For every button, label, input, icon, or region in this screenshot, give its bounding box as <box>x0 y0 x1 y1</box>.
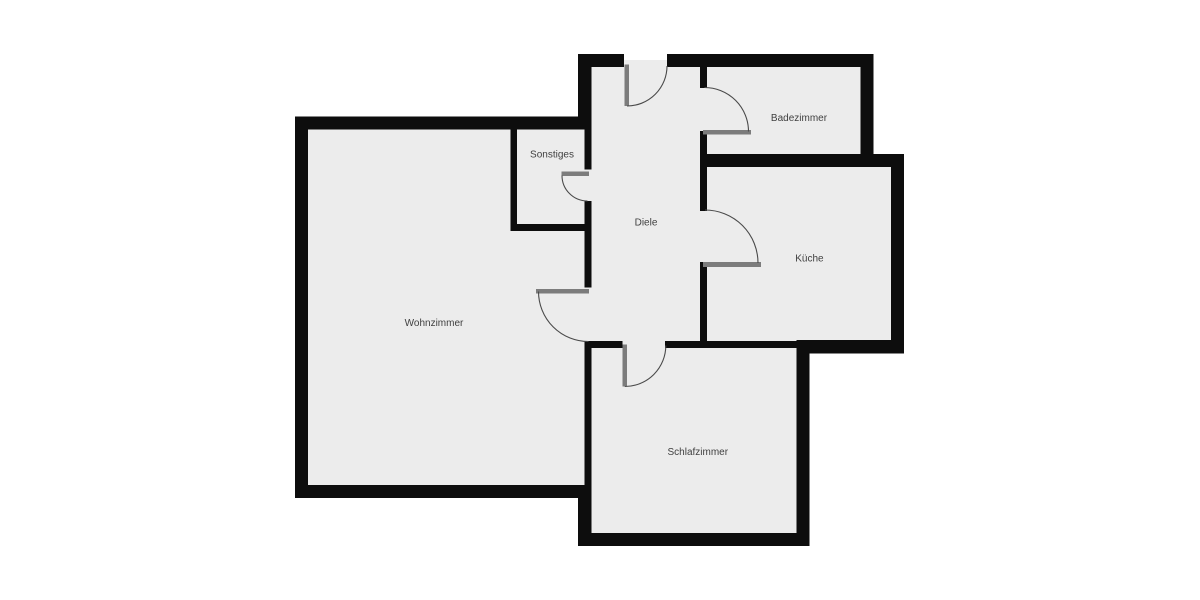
svg-text:Wohnzimmer: Wohnzimmer <box>405 318 464 329</box>
svg-text:Schlafzimmer: Schlafzimmer <box>668 447 729 458</box>
svg-text:Sonstiges: Sonstiges <box>530 150 574 161</box>
svg-text:Diele: Diele <box>635 218 658 229</box>
svg-text:Küche: Küche <box>795 254 824 265</box>
svg-text:Badezimmer: Badezimmer <box>771 113 828 124</box>
